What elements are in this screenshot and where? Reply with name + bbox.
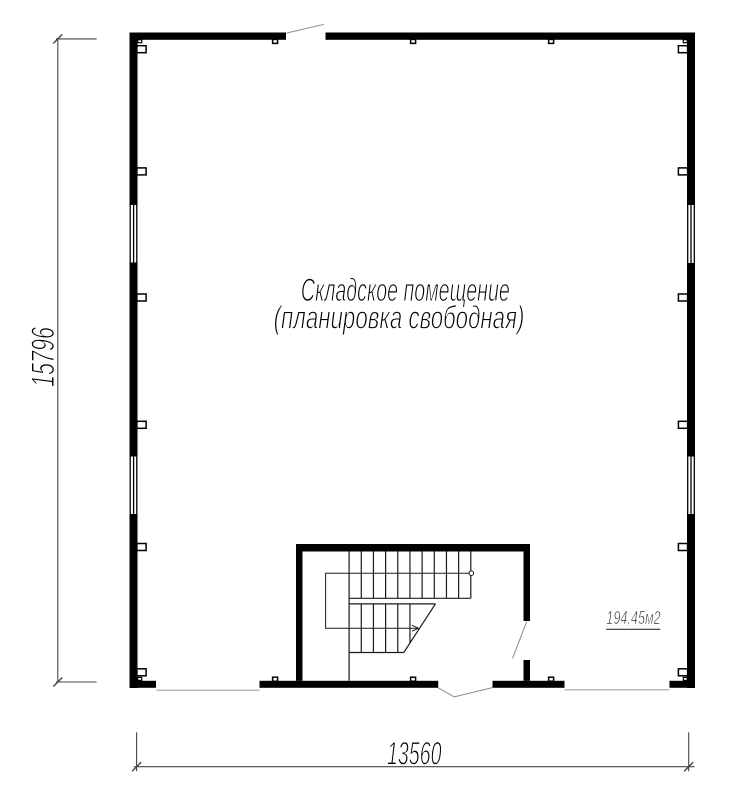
svg-text:(планировка свободная): (планировка свободная) — [274, 299, 525, 335]
svg-text:194,45м2: 194,45м2 — [606, 607, 661, 628]
svg-text:13560: 13560 — [387, 735, 442, 771]
svg-text:15796: 15796 — [25, 327, 61, 387]
